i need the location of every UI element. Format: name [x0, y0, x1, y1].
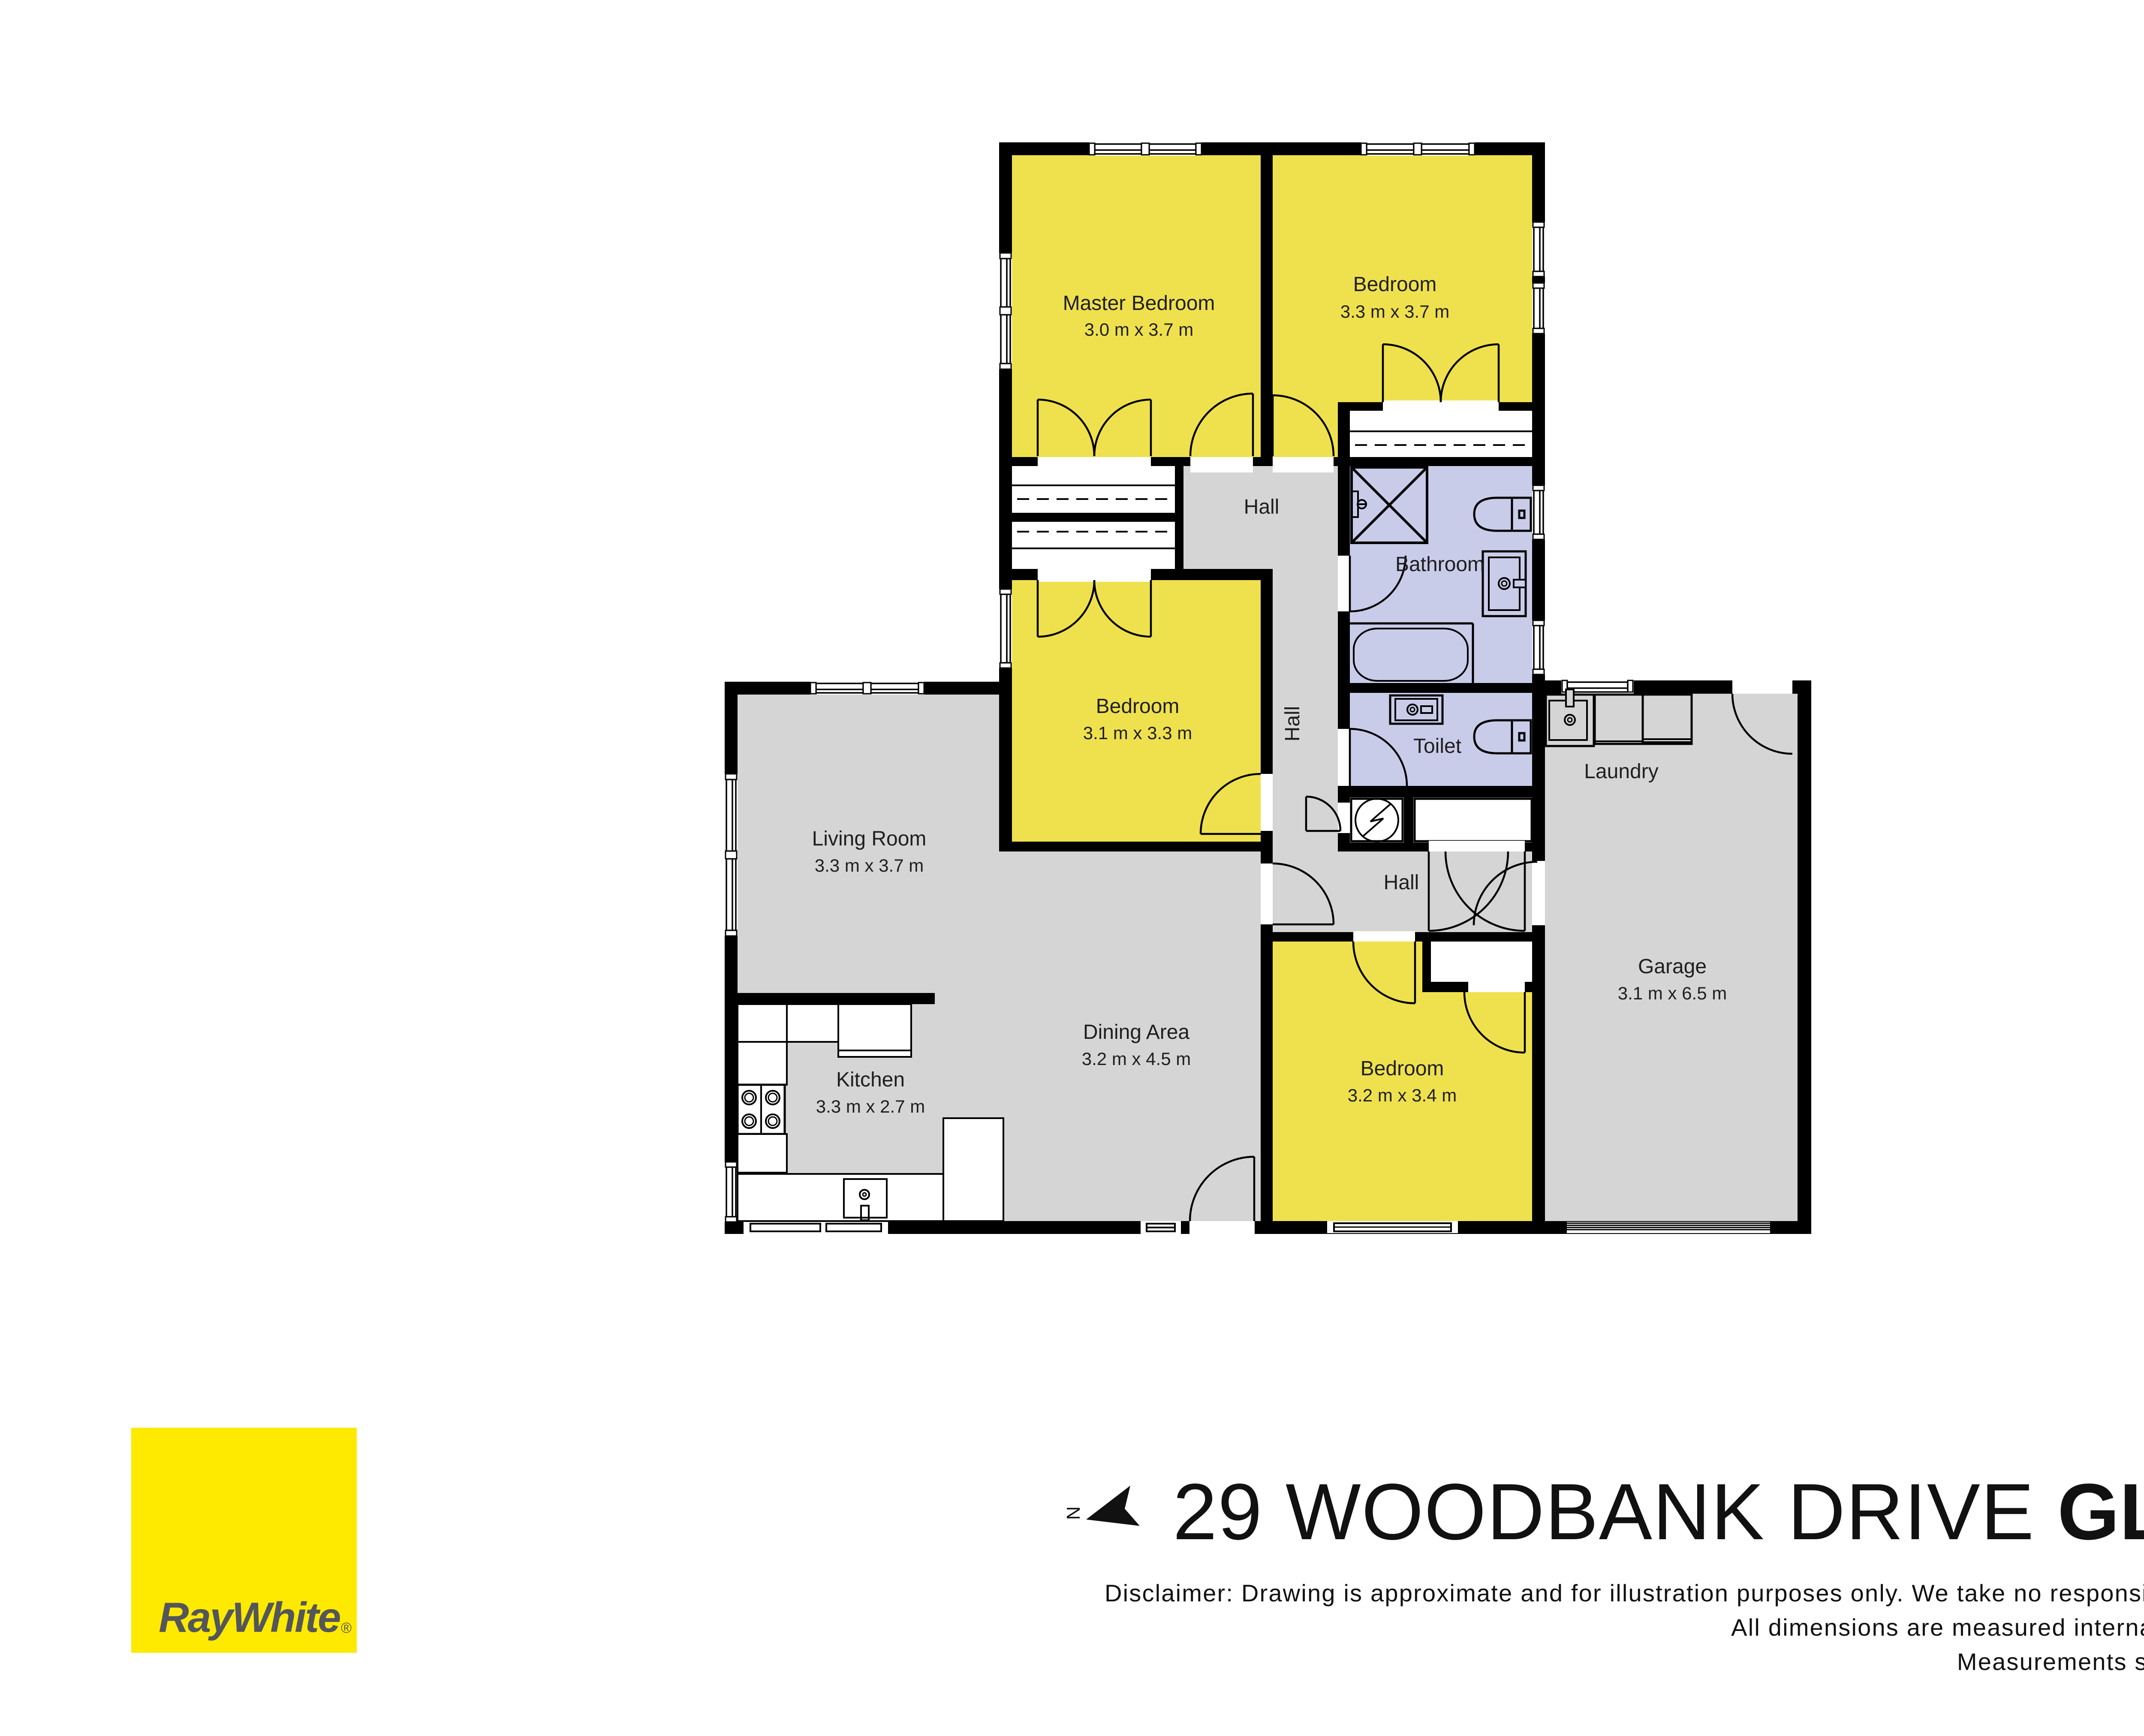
svg-text:Garage: Garage: [1638, 955, 1707, 978]
svg-text:Hall: Hall: [1384, 871, 1419, 894]
svg-text:All dimensions are measured in: All dimensions are measured internally a…: [1731, 1614, 2144, 1641]
svg-text:Hall: Hall: [1244, 496, 1280, 518]
svg-text:Living Room: Living Room: [812, 827, 927, 850]
svg-text:Bedroom: Bedroom: [1096, 695, 1180, 718]
svg-text:Bedroom: Bedroom: [1353, 273, 1437, 296]
svg-text:RayWhite®: RayWhite®: [159, 1594, 352, 1641]
svg-text:29 WOODBANK DRIVE GLEN EDEN: 29 WOODBANK DRIVE GLEN EDEN: [1173, 1468, 2144, 1556]
svg-text:Measurements should be verifie: Measurements should be verified by the b…: [1957, 1648, 2144, 1675]
svg-text:3.1 m x 3.3 m: 3.1 m x 3.3 m: [1083, 723, 1192, 743]
svg-text:Hall: Hall: [1281, 706, 1304, 742]
svg-text:3.2 m x 3.4 m: 3.2 m x 3.4 m: [1348, 1085, 1457, 1105]
svg-text:Dining Area: Dining Area: [1083, 1021, 1189, 1044]
svg-text:3.1 m x 6.5 m: 3.1 m x 6.5 m: [1618, 983, 1727, 1003]
svg-text:Master Bedroom: Master Bedroom: [1063, 292, 1215, 315]
svg-text:3.0 m x 3.7 m: 3.0 m x 3.7 m: [1084, 319, 1193, 340]
svg-text:Bedroom: Bedroom: [1361, 1057, 1444, 1080]
svg-text:3.2 m x 4.5 m: 3.2 m x 4.5 m: [1082, 1049, 1191, 1069]
svg-text:N: N: [1063, 1506, 1084, 1520]
svg-text:3.3 m x 3.7 m: 3.3 m x 3.7 m: [1340, 301, 1449, 322]
svg-text:Laundry: Laundry: [1584, 760, 1658, 783]
svg-text:Toilet: Toilet: [1413, 735, 1461, 758]
svg-text:Kitchen: Kitchen: [836, 1068, 905, 1091]
svg-text:3.3 m x 2.7 m: 3.3 m x 2.7 m: [816, 1096, 925, 1116]
svg-text:Bathroom: Bathroom: [1395, 553, 1485, 576]
svg-text:3.3 m x 3.7 m: 3.3 m x 3.7 m: [815, 855, 924, 876]
svg-text:Disclaimer: Drawing is approxi: Disclaimer: Drawing is approximate and f…: [1105, 1580, 2144, 1607]
